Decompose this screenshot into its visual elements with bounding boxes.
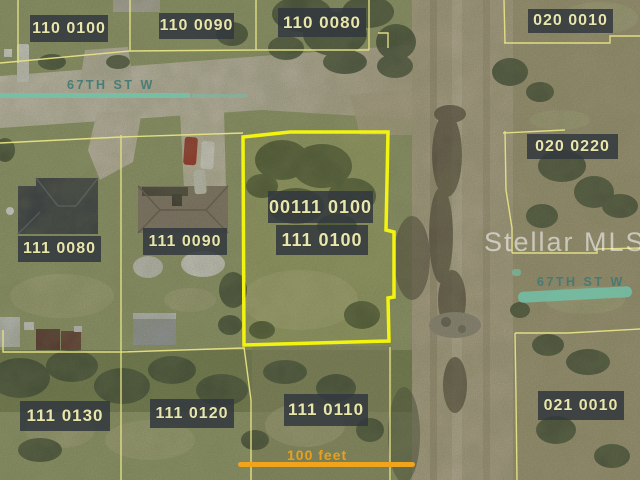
parcel-label-110-0080: 110 0080 (278, 8, 366, 37)
label-layer: 110 0100 110 0090 110 0080 020 0010 020 … (0, 0, 640, 480)
parcel-label-110-0090: 110 0090 (159, 13, 234, 39)
parcel-label-111-0080: 111 0080 (18, 236, 101, 262)
parcel-label-111-0120: 111 0120 (150, 399, 234, 428)
parcel-label-00111-0100: 00111 0100 (268, 191, 373, 223)
street-line-east (518, 286, 632, 303)
street-line-west-faint (192, 94, 247, 98)
street-name-west: 67TH ST W (67, 78, 155, 92)
parcel-label-110-0100: 110 0100 (30, 15, 108, 42)
stellar-mls-watermark: Stellar MLS (484, 227, 640, 258)
scale-label: 100 feet (287, 447, 347, 463)
scale-bar (238, 462, 415, 467)
parcel-label-111-0100: 111 0100 (276, 225, 368, 255)
parcel-label-111-0110: 111 0110 (284, 394, 368, 426)
street-line-west (0, 93, 190, 98)
parcel-label-020-0220: 020 0220 (527, 134, 618, 159)
parcel-label-111-0130: 111 0130 (20, 401, 110, 431)
parcel-label-020-0010: 020 0010 (528, 9, 613, 33)
parcel-label-111-0090: 111 0090 (143, 228, 227, 255)
street-line-east-dot (512, 269, 521, 276)
parcel-label-021-0010: 021 0010 (538, 391, 624, 420)
parcel-map: 110 0100 110 0090 110 0080 020 0010 020 … (0, 0, 640, 480)
